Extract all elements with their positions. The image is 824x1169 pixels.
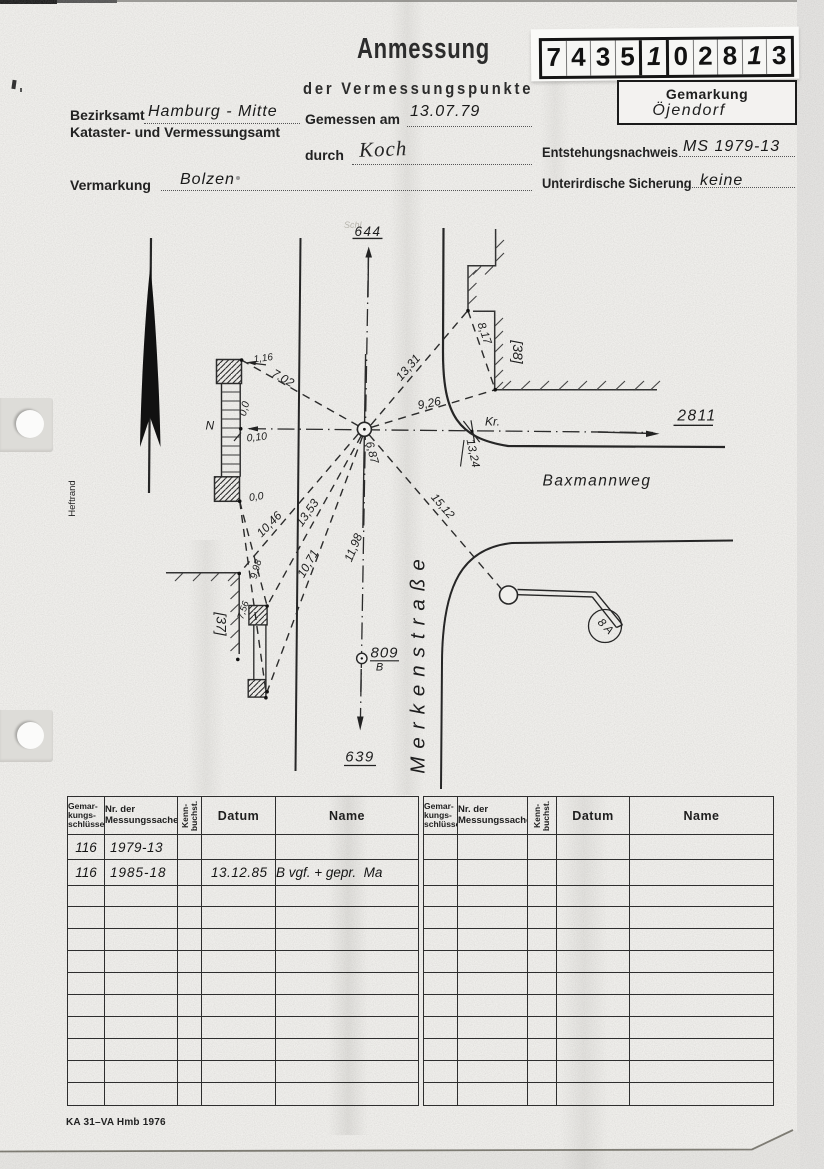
svg-text:Heftrand: Heftrand bbox=[67, 480, 78, 516]
svg-text:8,17: 8,17 bbox=[475, 321, 494, 347]
svg-text:0,0: 0,0 bbox=[248, 490, 264, 504]
svg-text:[38]: [38] bbox=[510, 339, 526, 364]
svg-text:809: 809 bbox=[370, 645, 398, 662]
svg-text:7.02: 7.02 bbox=[269, 366, 297, 390]
svg-text:13,31: 13,31 bbox=[393, 351, 423, 383]
svg-text:Baxmannweg: Baxmannweg bbox=[543, 473, 652, 490]
svg-text:B: B bbox=[376, 662, 383, 674]
svg-text:8 A: 8 A bbox=[595, 617, 616, 638]
svg-text:9,98: 9,98 bbox=[249, 558, 265, 580]
svg-text:0,0: 0,0 bbox=[237, 400, 252, 417]
svg-text:9,26: 9,26 bbox=[416, 394, 442, 412]
svg-text:[37]: [37] bbox=[214, 611, 230, 636]
svg-text:639: 639 bbox=[345, 749, 375, 766]
svg-text:11,98: 11,98 bbox=[341, 531, 365, 564]
svg-text:15,12: 15,12 bbox=[428, 492, 456, 522]
svg-text:10,46: 10,46 bbox=[254, 508, 285, 540]
svg-text:Merkenstraße: Merkenstraße bbox=[407, 551, 430, 773]
svg-text:644: 644 bbox=[354, 224, 381, 239]
svg-text:Kr.: Kr. bbox=[485, 415, 500, 429]
svg-text:0,10: 0,10 bbox=[246, 430, 268, 444]
svg-text:2811: 2811 bbox=[676, 408, 716, 425]
svg-text:1,16: 1,16 bbox=[253, 352, 274, 366]
svg-text:N: N bbox=[206, 419, 215, 433]
svg-text:13,24: 13,24 bbox=[464, 438, 482, 469]
